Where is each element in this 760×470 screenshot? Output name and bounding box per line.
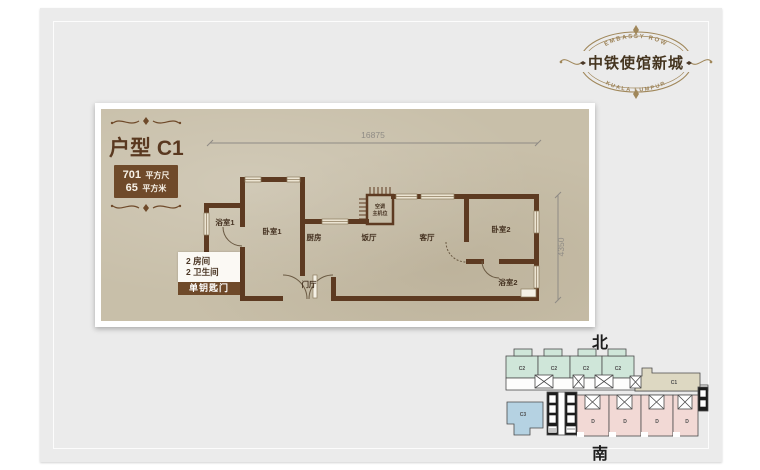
area-sqft: 701 平方尺 — [114, 168, 178, 181]
unit-title: 户型 C1 — [109, 136, 183, 162]
keyplan-unit-label: C1 — [671, 380, 678, 386]
keyplan-unit-label: C3 — [520, 412, 527, 418]
logo-tagline-top: EMBASSY ROW — [604, 34, 669, 48]
room-label-dining: 饭厅 — [361, 232, 377, 242]
keyplan-unit-label: C2 — [583, 366, 590, 372]
unit-badge: 户型 C1 701 平方尺 65 平方米 — [109, 115, 183, 219]
area-sqm-value: 65 — [126, 182, 138, 194]
rooms-count: 2 房间 — [186, 256, 240, 267]
baths-count: 2 卫生间 — [186, 267, 240, 278]
keyplan-unit-label: C2 — [519, 366, 526, 372]
south-label: 南 — [589, 440, 611, 464]
room-label-bath1: 浴室1 — [215, 217, 234, 227]
keyplan-c1-unit — [635, 368, 700, 391]
brand-logo: EMBASSY ROW KUALA LUMPUR 中铁使馆新城 — [558, 22, 714, 100]
room-label-kitchen: 厨房 — [307, 232, 322, 242]
logo-name-text: 中铁使馆新城 — [588, 54, 684, 72]
keyplan-c3-unit — [507, 402, 543, 435]
badge-flourish-top — [109, 115, 183, 131]
keyplan-unit-label: D — [591, 419, 595, 425]
logo-right-dot — [710, 61, 713, 64]
key-plan: C2 C2 C2 C2 C1 C3 D D D D — [502, 348, 709, 440]
keyplan-c2-units — [506, 349, 634, 378]
room-label-living: 客厅 — [419, 232, 435, 242]
floorplan-card: 16875 4350 — [95, 103, 595, 327]
bath2-fixture — [521, 289, 536, 297]
room-label-ac2: 主机位 — [372, 210, 387, 217]
unit-info-summary: 2 房间 2 卫生间 — [178, 252, 240, 282]
keyplan-unit-label: D — [623, 419, 627, 425]
dimension-height-label: 4350 — [556, 237, 566, 256]
area-sqm-unit: 平方米 — [142, 184, 166, 193]
keyplan-unit-label: D — [685, 419, 689, 425]
area-sqm: 65 平方米 — [114, 181, 178, 194]
room-label-bed1: 卧室1 — [262, 226, 281, 236]
floorplan-paper: 16875 4350 — [101, 109, 589, 321]
unit-info-box: 2 房间 2 卫生间 单钥匙门 — [178, 252, 240, 295]
logo-tagline-top-text: EMBASSY ROW — [604, 34, 669, 48]
room-label-ac1: 空调 — [375, 203, 385, 210]
keyplan-unit-label: C2 — [615, 366, 622, 372]
keyplan-unit-label: C2 — [551, 366, 558, 372]
room-label-bath2: 浴室2 — [498, 277, 517, 287]
logo-left-dot — [560, 61, 563, 64]
keyplan-unit-label: D — [655, 419, 659, 425]
room-label-foyer: 门厅 — [302, 279, 317, 289]
badge-flourish-bottom — [109, 198, 183, 214]
key-note: 单钥匙门 — [178, 282, 240, 295]
room-label-bed2: 卧室2 — [491, 224, 510, 234]
area-sqft-unit: 平方尺 — [145, 171, 169, 180]
dimension-width-label: 16875 — [361, 130, 385, 140]
unit-area-box: 701 平方尺 65 平方米 — [114, 165, 178, 198]
keyplan-corridor — [506, 378, 636, 390]
